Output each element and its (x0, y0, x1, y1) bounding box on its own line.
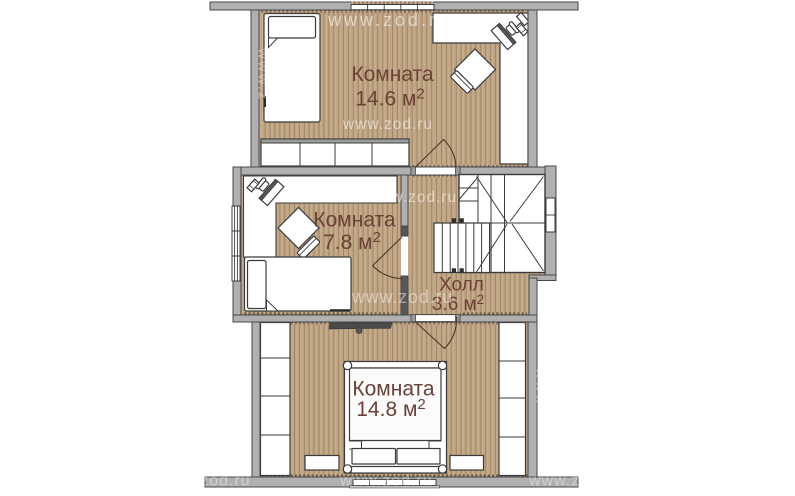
svg-text:Комната: Комната (313, 209, 396, 232)
svg-text:www.zod.ru: www.zod.ru (528, 473, 622, 490)
svg-text:Комната: Комната (351, 63, 434, 86)
svg-text:www.zod.ru: www.zod.ru (339, 473, 433, 490)
svg-text:www.zod.ru: www.zod.ru (327, 10, 451, 30)
svg-text:14.6 м2: 14.6 м2 (355, 86, 425, 111)
svg-text:www.zod.ru: www.zod.ru (351, 287, 453, 307)
svg-text:www.zod.ru: www.zod.ru (342, 116, 433, 133)
svg-text:14.8 м2: 14.8 м2 (356, 396, 426, 421)
svg-text:www: www (532, 367, 549, 407)
svg-text:7.8 м2: 7.8 м2 (323, 229, 381, 254)
svg-text:www.zod.ru: www.zod.ru (366, 189, 457, 206)
svg-text:www.z: www.z (255, 47, 272, 101)
svg-text:www.zod.ru: www.zod.ru (157, 473, 251, 490)
